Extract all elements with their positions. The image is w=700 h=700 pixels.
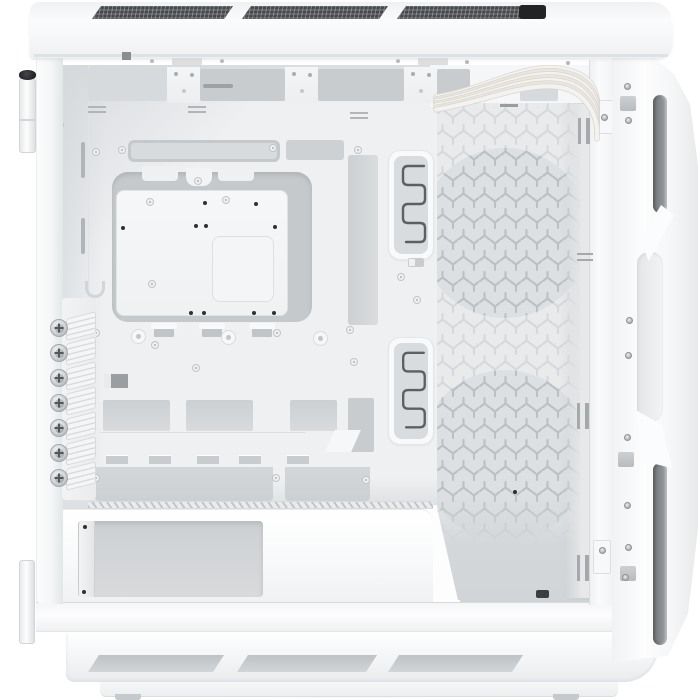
screw	[121, 226, 125, 230]
top-panel-latch-notch	[122, 52, 131, 60]
screw-hole	[118, 146, 126, 154]
frame-screw	[624, 83, 631, 90]
rail-slot-pair	[577, 555, 589, 581]
screw	[189, 311, 193, 315]
radiator-bracket-opening	[318, 69, 404, 101]
panel-edge-shade	[565, 104, 589, 598]
radiator-bracket-tab	[285, 67, 318, 103]
rail-slot-pair	[577, 403, 589, 429]
tie-down-slot	[252, 328, 272, 337]
frame-clip	[618, 452, 634, 467]
tie-down-tab	[199, 323, 225, 329]
screw	[220, 59, 224, 63]
shroud-slot-vent	[149, 455, 171, 464]
phillips-screw-head	[55, 474, 64, 483]
frame-screw	[625, 352, 632, 359]
rail-slot-pair	[577, 253, 593, 263]
screw-hole	[350, 358, 358, 366]
screw-hole	[362, 476, 370, 484]
phillips-screw-head	[55, 324, 64, 333]
screw-hole	[222, 196, 230, 204]
cable-routing-grommet-lower	[388, 337, 434, 445]
top-panel	[30, 2, 672, 58]
zigzag-grommet-slit	[394, 343, 430, 441]
frame-groove	[653, 463, 667, 645]
shroud-vent-hatch	[88, 501, 433, 509]
standoff-grommet	[131, 329, 146, 344]
rear-wall-slot	[81, 142, 85, 178]
frame-groove	[653, 95, 667, 213]
frame-screw	[624, 502, 631, 509]
phillips-screw-head	[55, 424, 64, 433]
shroud-slot-vent	[287, 455, 309, 464]
screw-hole	[192, 364, 200, 372]
cutout-tab-left	[142, 166, 178, 181]
frame-screw	[625, 544, 632, 551]
screw-hole	[354, 146, 362, 154]
front-edge-cutout-upper	[348, 155, 378, 325]
grommet-rubber	[131, 143, 277, 159]
frame-screw	[601, 114, 608, 121]
tie-down-slot	[154, 328, 174, 337]
shroud-recess	[285, 467, 370, 501]
tray-vent-dashes	[88, 106, 106, 114]
psu-window-opening	[78, 521, 263, 597]
cable-clip	[408, 258, 424, 267]
phillips-screw-head	[55, 399, 64, 408]
tie-down-tab	[249, 323, 275, 329]
bottom-vent-slot	[388, 655, 523, 672]
pcie-thumbscrew	[50, 469, 68, 487]
shroud-slot-vent	[197, 455, 219, 464]
screw	[194, 224, 198, 228]
screw-hole	[272, 474, 280, 482]
hinge-thumbscrew-black	[19, 70, 36, 80]
frame-clip	[620, 96, 636, 111]
phillips-screw-head	[55, 449, 64, 458]
case-foot	[553, 694, 579, 700]
screw-hole	[151, 341, 159, 349]
top-rail-slot	[203, 84, 233, 88]
phillips-screw-head	[55, 374, 64, 383]
pcie-thumbscrew	[50, 394, 68, 412]
screw	[254, 202, 258, 206]
glass-panel-hinge-pin-top	[19, 78, 36, 153]
radiator-bracket-opening	[88, 69, 167, 101]
tie-down-tab	[151, 323, 177, 329]
pcie-thumbscrew	[50, 344, 68, 362]
front-panel-cable-bundle	[430, 53, 642, 153]
phillips-screw-head	[55, 349, 64, 358]
screw	[396, 59, 400, 63]
cable-routing-grommet-upper	[388, 150, 434, 260]
screw	[150, 59, 154, 63]
tray-vent-dashes	[188, 106, 206, 114]
top-vent-mesh	[242, 6, 388, 19]
bottom-vent-slot	[237, 655, 377, 672]
bottom-frame-rail	[36, 602, 638, 632]
screw-hole	[273, 329, 281, 337]
standoff-grommet	[221, 330, 236, 345]
top-panel-face	[30, 2, 672, 22]
top-vent-mesh	[92, 6, 233, 19]
cutout-tab-right	[218, 166, 254, 181]
screw	[203, 201, 207, 205]
frame-screw	[599, 547, 606, 554]
screw	[273, 225, 277, 229]
screw-hole	[397, 273, 405, 281]
screw-hole	[92, 148, 100, 156]
case-foot	[115, 694, 141, 700]
rear-wall-slot	[81, 218, 85, 254]
screw-hole	[194, 177, 202, 185]
tray-vent-dashes	[350, 112, 368, 120]
cable-cutout	[286, 140, 344, 160]
screw	[513, 490, 517, 494]
pc-case-product-photo	[0, 0, 700, 700]
small-cutout	[104, 374, 128, 388]
screw-hole	[413, 296, 421, 304]
bracket-screw-holes	[174, 72, 178, 76]
shroud-top-opening	[186, 400, 253, 431]
psu-mount-rail	[79, 521, 95, 597]
screw-hole	[146, 198, 154, 206]
rail-bracket	[593, 540, 611, 574]
plate-edge-line	[100, 432, 305, 433]
pcie-thumbscrew	[50, 419, 68, 437]
screw	[82, 590, 86, 594]
top-io-connector	[519, 5, 546, 19]
radiator-bracket-tab	[167, 67, 200, 103]
frame-screw	[626, 317, 633, 324]
frame-screw	[625, 117, 632, 124]
case-base-plinth	[100, 680, 618, 697]
cable-grommet-horizontal	[128, 140, 280, 162]
shroud-top-opening	[290, 400, 337, 431]
pcie-thumbscrew	[50, 319, 68, 337]
screw	[83, 525, 87, 529]
bracket-screw-holes	[292, 72, 296, 76]
shroud-top-opening	[103, 400, 170, 431]
pcie-thumbscrew	[50, 369, 68, 387]
frame-screw	[622, 574, 629, 581]
screw	[272, 311, 276, 315]
screw	[252, 311, 256, 315]
fan-connector	[536, 590, 549, 598]
tie-down-slot	[202, 328, 222, 337]
bottom-vent-slot	[88, 655, 224, 672]
frame-screw	[624, 434, 631, 441]
cpu-cover-inner-plate	[212, 236, 274, 302]
shroud-slot-vent	[106, 455, 128, 464]
screw-hole	[346, 326, 354, 334]
pcie-thumbscrew	[50, 444, 68, 462]
shroud-slot-vent	[239, 455, 261, 464]
glass-panel-hinge-pin-bottom	[19, 560, 35, 644]
standoff-grommet	[313, 331, 328, 346]
screw	[202, 311, 206, 315]
screw-hole	[269, 144, 277, 152]
shroud-recess	[95, 467, 273, 501]
screw-hole	[148, 280, 156, 288]
bracket-screw-holes	[411, 72, 415, 76]
frame-recessed-channel	[637, 252, 663, 422]
screw	[204, 224, 208, 228]
zigzag-grommet-slit	[394, 156, 430, 256]
